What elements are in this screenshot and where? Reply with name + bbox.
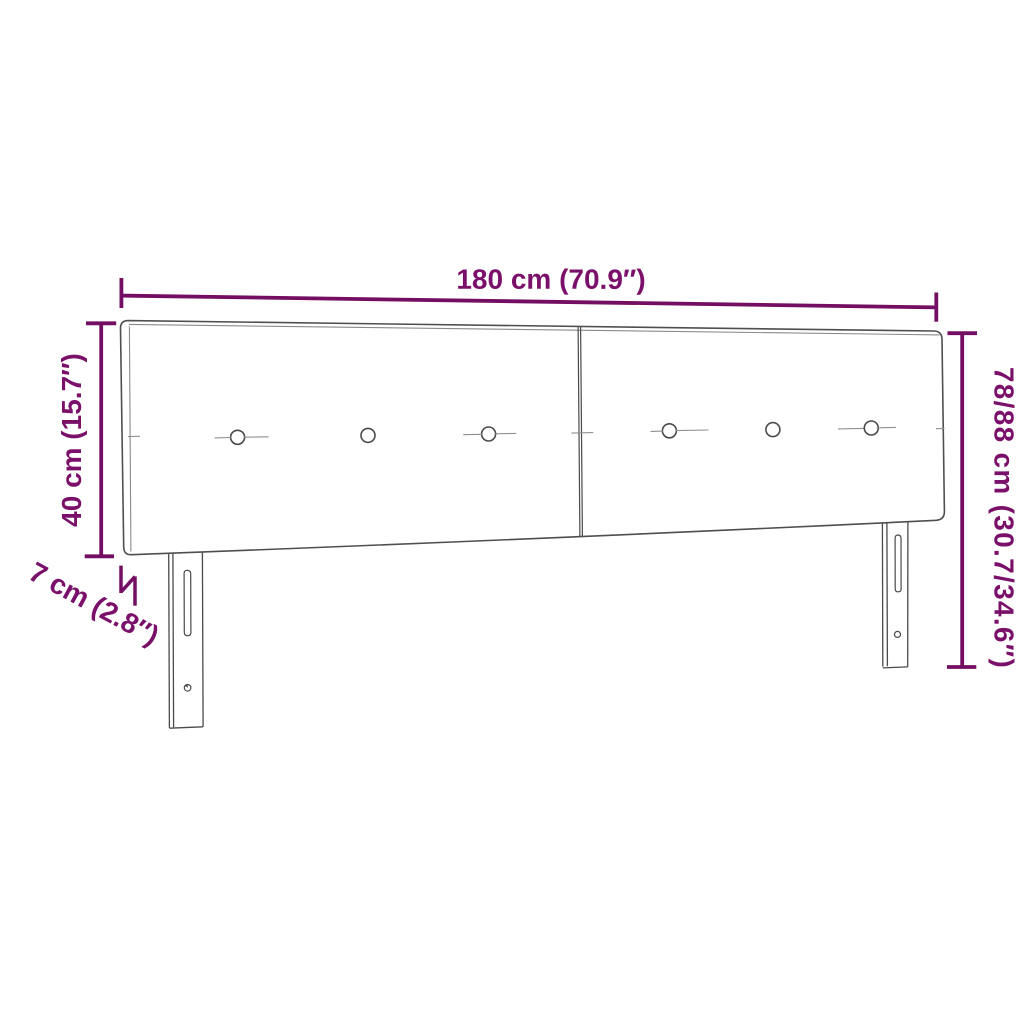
svg-text:78/88 cm (30.7/34.6″): 78/88 cm (30.7/34.6″) [989,367,1020,669]
svg-text:7 cm (2.8″): 7 cm (2.8″) [24,556,164,651]
svg-text:40 cm (15.7″): 40 cm (15.7″) [56,353,87,527]
svg-text:180 cm (70.9″): 180 cm (70.9″) [456,264,645,295]
